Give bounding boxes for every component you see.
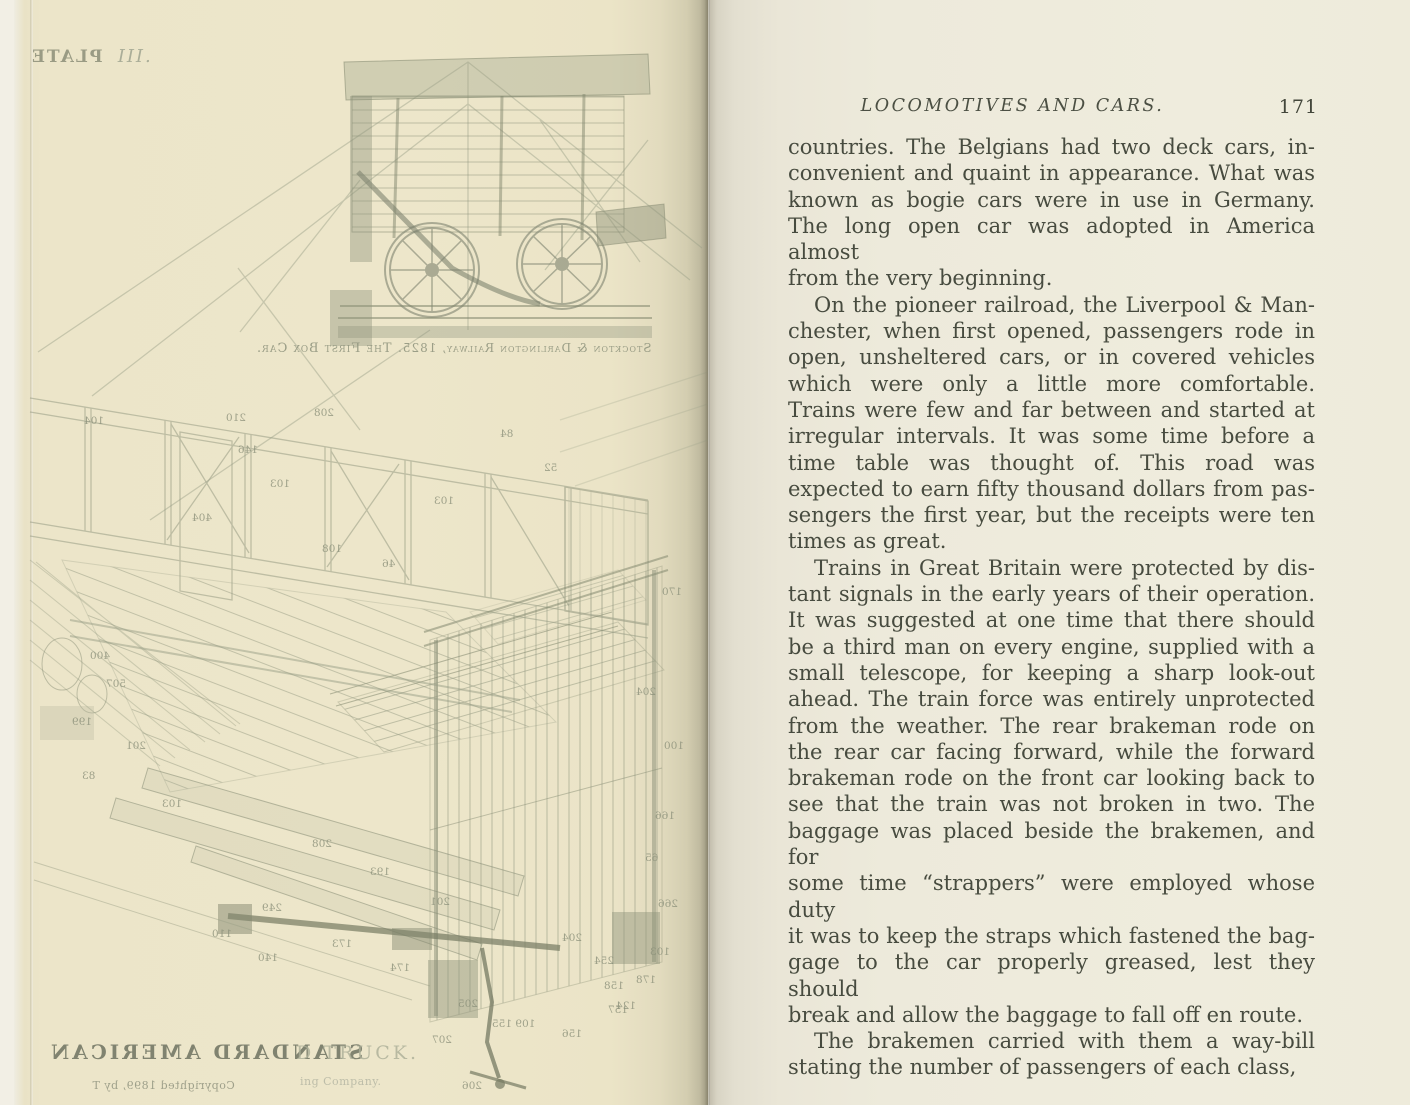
ghost-first-boxcar (330, 54, 666, 346)
ghost-part-number: 104 (84, 415, 104, 427)
text-line: see that the train was not broken in two… (788, 791, 1315, 817)
plate-title-offset-fragment: D TRUCK. (296, 1042, 419, 1064)
right-page: LOCOMOTIVES AND CARS. 171 countries. The… (710, 0, 1410, 1105)
ghost-part-number: 210 (226, 412, 246, 424)
copyright-ghost: Copyrighted 1899, by T (92, 1074, 235, 1093)
ghost-part-number: 103 (162, 798, 182, 810)
ghost-part-number: 201 (430, 896, 450, 908)
text-line: The long open car was adopted in America… (788, 213, 1315, 266)
text-line: tant signals in the early years of their… (788, 581, 1315, 607)
figure-caption-line2: Stockton & Darlington Railway, 1825. (397, 340, 652, 357)
ghost-part-number: 84 (500, 428, 513, 440)
text-line: It was suggested at one time that there … (788, 607, 1315, 633)
text-line: open, unsheltered cars, or in covered ve… (788, 344, 1315, 370)
text-line: small telescope, for keeping a sharp loo… (788, 660, 1315, 686)
text-line: some time “strappers” were employed whos… (788, 870, 1315, 923)
ghost-part-number: 157 (608, 1004, 628, 1016)
ghost-part-number: 204 (636, 686, 656, 698)
text-line: expected to earn fifty thousand dollars … (788, 476, 1315, 502)
text-line: it was to keep the straps which fastened… (788, 923, 1315, 949)
ghost-part-number: 400 (90, 650, 110, 662)
ghost-part-number: 100 (664, 740, 684, 752)
ghost-part-number: 404 (192, 512, 212, 524)
ghost-part-number: 103 (434, 495, 454, 507)
text-line: the rear car facing forward, while the f… (788, 739, 1315, 765)
ghost-part-number: 199 (72, 716, 92, 728)
text-line: convenient and quaint in appearance. Wha… (788, 160, 1315, 186)
body-text-column: countries. The Belgians had two deck car… (788, 134, 1315, 1081)
ghost-part-number: 174 (390, 962, 410, 974)
ghost-part-number: 146 (238, 444, 258, 456)
text-line: Trains were few and far between and star… (788, 397, 1315, 423)
text-line: gage to the car properly greased, lest t… (788, 949, 1315, 1002)
ghost-part-number: 166 (655, 810, 675, 822)
text-line: The brakemen carried with them a way-bil… (788, 1028, 1315, 1054)
ghost-part-number: 158 (604, 980, 624, 992)
text-line: known as bogie cars were in use in Germa… (788, 187, 1315, 213)
ghost-part-number: 46 (382, 558, 395, 570)
ghost-part-number: 201 (126, 740, 146, 752)
ghost-part-number: 208 (314, 407, 334, 419)
ghost-part-number: 266 (658, 898, 678, 910)
ghost-part-number: 83 (82, 770, 95, 782)
text-line: time table was thought of. This road was (788, 450, 1315, 476)
copyright-offset-fragment: ing Company. (300, 1075, 382, 1088)
ghost-part-number: 173 (332, 938, 352, 950)
text-line: brakeman rode on the front car looking b… (788, 765, 1315, 791)
figure-caption-line1: The First Box Car. (256, 340, 392, 357)
ghost-part-number: 208 (312, 838, 332, 850)
text-line: On the pioneer railroad, the Liverpool &… (788, 292, 1315, 318)
ghost-part-number: 108 (322, 543, 342, 555)
plate-numeral: III. (118, 46, 153, 67)
text-line: Trains in Great Britain were protected b… (788, 555, 1315, 581)
text-line: break and allow the baggage to fall off … (788, 1002, 1315, 1028)
text-line: irregular intervals. It was some time be… (788, 423, 1315, 449)
text-line: baggage was placed beside the brakemen, … (788, 818, 1315, 871)
ghost-part-number: 52 (544, 462, 557, 474)
ghost-illustration-svg (14, 0, 708, 1105)
ghost-part-number: 178 (636, 974, 656, 986)
bottom-caption: STANDARD AMERICAN D TRUCK. Copyrighted 1… (14, 1036, 708, 1096)
text-line: be a third man on every engine, supplied… (788, 634, 1315, 660)
text-line: from the weather. The rear brakeman rode… (788, 713, 1315, 739)
ghost-part-number: 140 (258, 952, 278, 964)
ghost-part-number: 103 (270, 478, 290, 490)
text-line: stating the number of passengers of each… (788, 1054, 1315, 1080)
open-book-scan: PLATE III. The First Box Car. Stockton &… (0, 0, 1410, 1105)
figure-caption-ghost: The First Box Car. Stockton & Darlington… (244, 338, 664, 357)
copyright-mirrored: Copyrighted 1899, by T (92, 1079, 235, 1092)
text-line: countries. The Belgians had two deck car… (788, 134, 1315, 160)
text-line: chester, when first opened, passengers r… (788, 318, 1315, 344)
ghost-part-number: 110 (212, 928, 232, 940)
ghost-part-number: 507 (106, 678, 126, 690)
text-line: times as great. (788, 528, 1315, 554)
ghost-part-number: 249 (262, 902, 282, 914)
left-page: PLATE III. The First Box Car. Stockton &… (14, 0, 708, 1105)
text-line: ahead. The train force was entirely unpr… (788, 686, 1315, 712)
text-line: which were only a little more comfortabl… (788, 371, 1315, 397)
plate-label: PLATE III. (30, 46, 153, 67)
ghost-part-number: 205 (458, 998, 478, 1010)
ghost-part-number: 193 (370, 866, 390, 878)
text-line: sengers the first year, but the receipts… (788, 502, 1315, 528)
plate-word-mirrored: PLATE (30, 47, 103, 67)
ghost-part-number: 103 (650, 946, 670, 958)
text-line: from the very beginning. (788, 265, 1315, 291)
ghost-part-number: 65 (645, 852, 658, 864)
page-number: 171 (1279, 96, 1318, 118)
ghost-part-number: 254 (594, 955, 614, 967)
ghost-part-number: 170 (662, 586, 682, 598)
running-head-title: LOCOMOTIVES AND CARS. (710, 96, 1315, 116)
ghost-part-number: 109 155 (492, 1018, 535, 1030)
running-head: LOCOMOTIVES AND CARS. 171 (710, 96, 1410, 126)
ghost-part-number: 204 (562, 932, 582, 944)
